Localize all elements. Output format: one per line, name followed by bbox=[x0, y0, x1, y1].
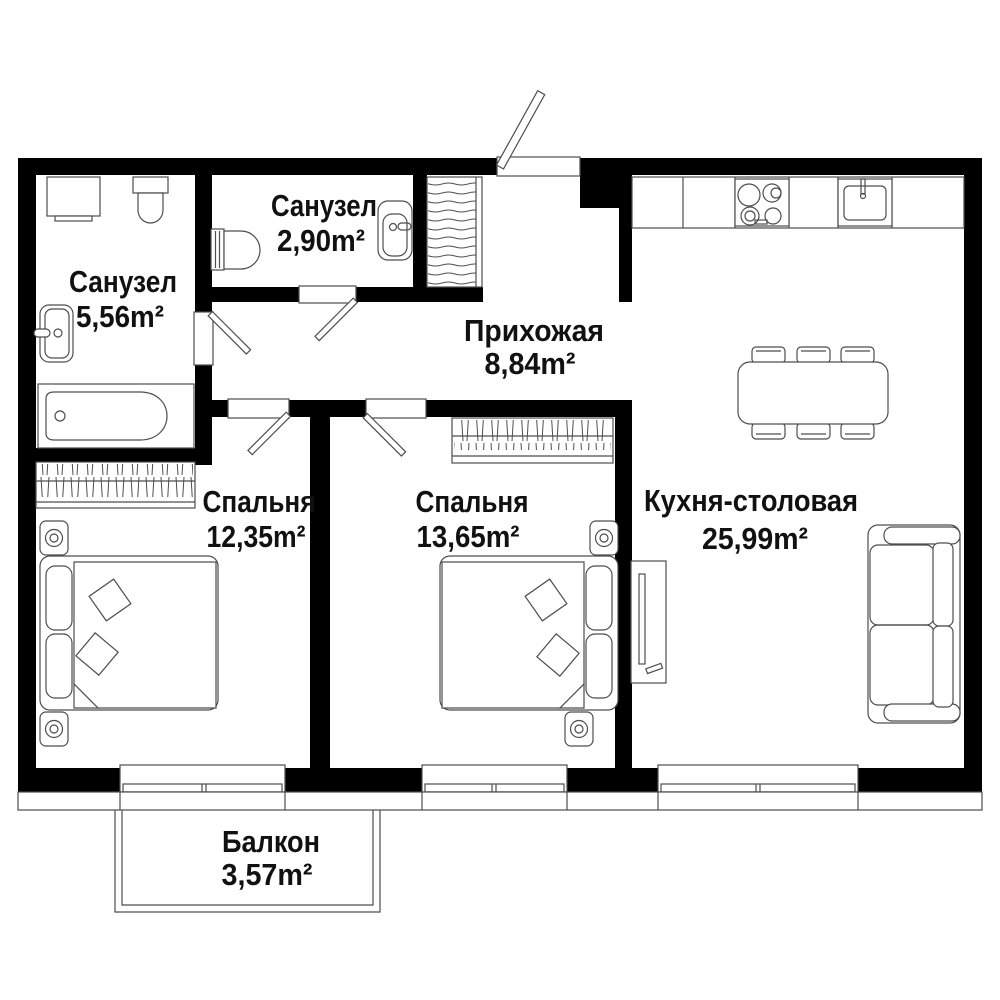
wall-segment bbox=[964, 158, 982, 792]
pillow bbox=[46, 566, 72, 630]
windows bbox=[18, 765, 982, 912]
kitchen-sink bbox=[838, 179, 892, 226]
bed-bedroom-2 bbox=[440, 556, 618, 710]
sofa bbox=[868, 525, 960, 723]
back-cushion bbox=[933, 543, 953, 626]
bathtub bbox=[38, 384, 194, 448]
tv-screen bbox=[639, 574, 645, 664]
wall-segment bbox=[18, 768, 120, 792]
wall-segment bbox=[426, 400, 632, 417]
room-label-bedroom-2: Спальня bbox=[416, 484, 529, 519]
window-kitchen bbox=[658, 765, 858, 792]
exterior-sill bbox=[18, 792, 982, 810]
wall-segment bbox=[18, 158, 497, 175]
wall-segment bbox=[567, 768, 658, 792]
back-cushion bbox=[933, 626, 953, 707]
entrance-door bbox=[497, 91, 580, 176]
room-area-bedroom-1: 12,35m² bbox=[207, 519, 306, 554]
wall-segment bbox=[858, 768, 982, 792]
sink bbox=[378, 201, 412, 260]
room-label-bathroom-large: Санузел bbox=[69, 264, 177, 299]
hall-closet bbox=[427, 177, 482, 287]
room-area-kitchen-dining: 25,99m² bbox=[702, 521, 808, 556]
tv-stand bbox=[631, 561, 666, 683]
kitchen-counter bbox=[632, 177, 964, 228]
wall-segment bbox=[619, 208, 632, 302]
wall-segment bbox=[195, 287, 299, 302]
chair bbox=[797, 347, 830, 363]
room-label-kitchen-dining: Кухня-столовая bbox=[644, 483, 858, 518]
chair bbox=[797, 423, 830, 439]
room-area-hallway: 8,84m² bbox=[485, 346, 576, 381]
window-bedroom-2 bbox=[422, 765, 567, 792]
pillow bbox=[586, 634, 612, 698]
room-area-bathroom-small: 2,90m² bbox=[277, 223, 365, 258]
toilet bbox=[133, 177, 168, 223]
room-label-bathroom-small: Санузел bbox=[271, 188, 377, 223]
chair bbox=[752, 347, 785, 363]
door-bathroom-small bbox=[299, 286, 357, 341]
room-area-bathroom-large: 5,56m² bbox=[76, 299, 164, 334]
toilet bbox=[211, 229, 260, 270]
stove bbox=[735, 179, 789, 226]
wall-segment bbox=[195, 400, 228, 417]
wall-segment bbox=[413, 175, 427, 287]
room-label-hallway: Прихожая bbox=[464, 313, 604, 348]
door-bathroom-large bbox=[194, 312, 251, 365]
nightstand bbox=[40, 521, 68, 555]
nightstand bbox=[565, 712, 593, 746]
wall-segment bbox=[18, 158, 36, 792]
dining-table bbox=[738, 347, 888, 439]
nightstand bbox=[40, 712, 68, 746]
blanket bbox=[442, 562, 584, 708]
door-bedroom-2 bbox=[363, 399, 426, 456]
sink bbox=[34, 305, 73, 362]
pillow bbox=[586, 566, 612, 630]
balcony-door-window bbox=[120, 765, 285, 792]
washing-machine bbox=[47, 177, 100, 221]
room-area-balcony: 3,57m² bbox=[222, 857, 313, 892]
wall-segment bbox=[285, 768, 422, 792]
table-top bbox=[738, 362, 888, 424]
pillow bbox=[46, 634, 72, 698]
chair bbox=[752, 423, 785, 439]
chair bbox=[841, 347, 874, 363]
wardrobe-bedroom-2 bbox=[452, 418, 613, 463]
door-bedroom-1 bbox=[228, 399, 290, 455]
chair bbox=[841, 423, 874, 439]
bed-bedroom-1 bbox=[40, 556, 218, 710]
room-label-balcony: Балкон bbox=[222, 824, 320, 859]
floor-plan: Санузел 5,56m² Санузел 2,90m² Прихожая 8… bbox=[0, 0, 1000, 1000]
armrest bbox=[884, 527, 960, 544]
wall-segment bbox=[356, 287, 483, 302]
wall-segment bbox=[580, 158, 982, 175]
nightstand bbox=[590, 521, 618, 555]
room-area-bedroom-2: 13,65m² bbox=[417, 519, 520, 554]
wall-segment bbox=[310, 400, 330, 768]
wall-segment bbox=[580, 163, 632, 208]
wardrobe-bedroom-1 bbox=[36, 462, 195, 508]
room-label-bedroom-1: Спальня bbox=[203, 484, 316, 519]
